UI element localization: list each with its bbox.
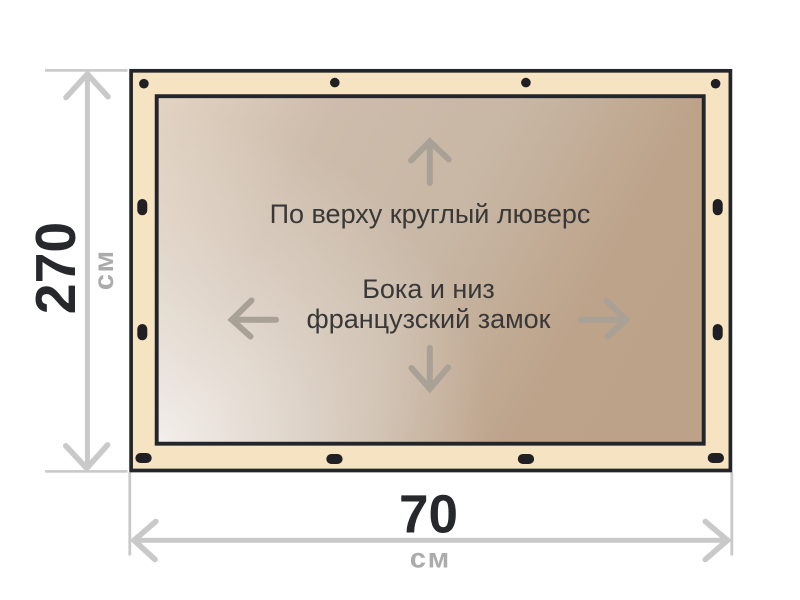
svg-text:см: см [410,543,451,574]
svg-text:270: 270 [24,222,87,315]
svg-text:70: 70 [399,485,458,545]
svg-text:По верху круглый люверс: По верху круглый люверс [270,199,591,229]
svg-text:Бока и низ: Бока и низ [362,274,495,304]
svg-text:французский замок: французский замок [307,304,551,334]
svg-text:см: см [88,249,119,290]
